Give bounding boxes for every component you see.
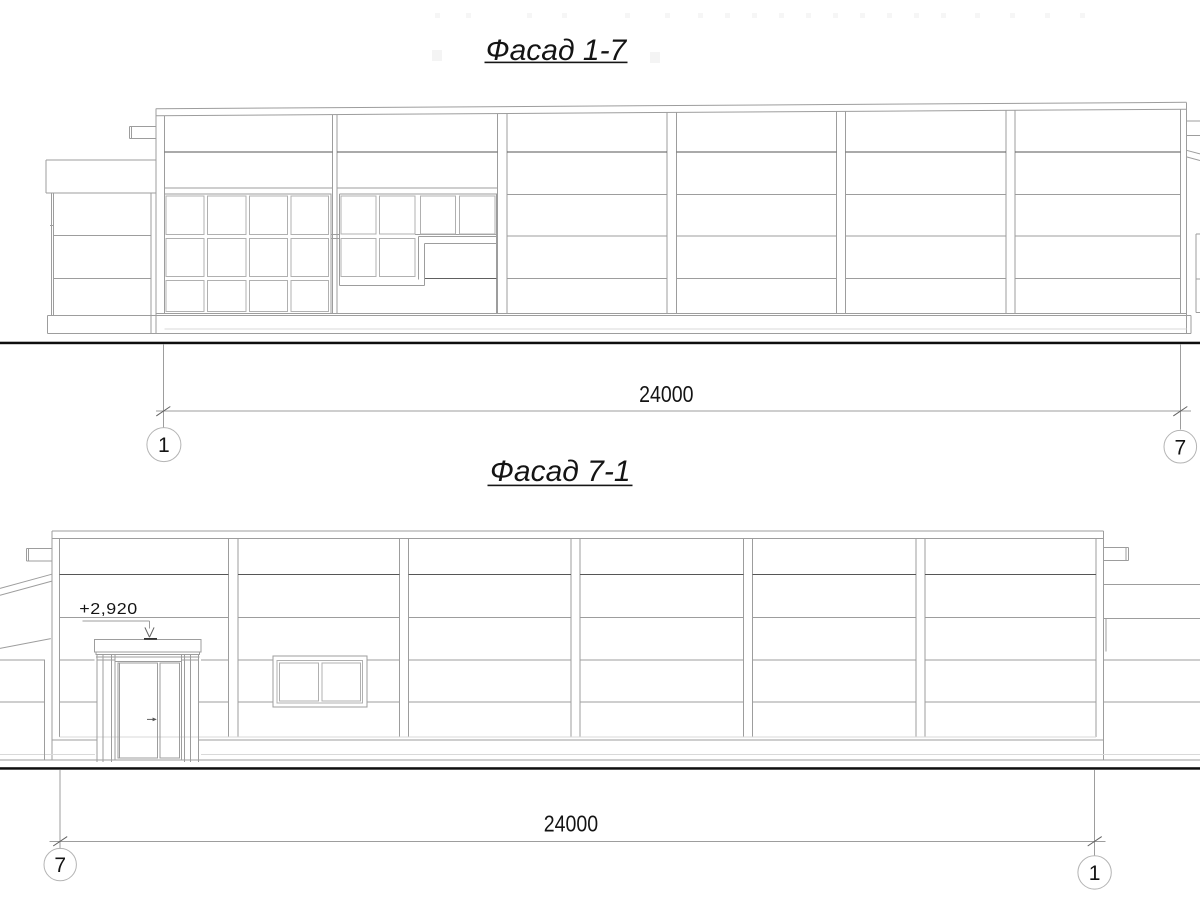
svg-text:Фасад 7-1: Фасад 7-1 (490, 455, 631, 488)
svg-text:1: 1 (1089, 862, 1101, 885)
svg-text:7: 7 (54, 854, 66, 877)
svg-text:1: 1 (158, 434, 170, 457)
svg-text:7: 7 (1174, 436, 1186, 459)
svg-text:+2,920: +2,920 (79, 600, 138, 618)
svg-text:24000: 24000 (639, 382, 693, 408)
svg-text:24000: 24000 (544, 811, 598, 837)
